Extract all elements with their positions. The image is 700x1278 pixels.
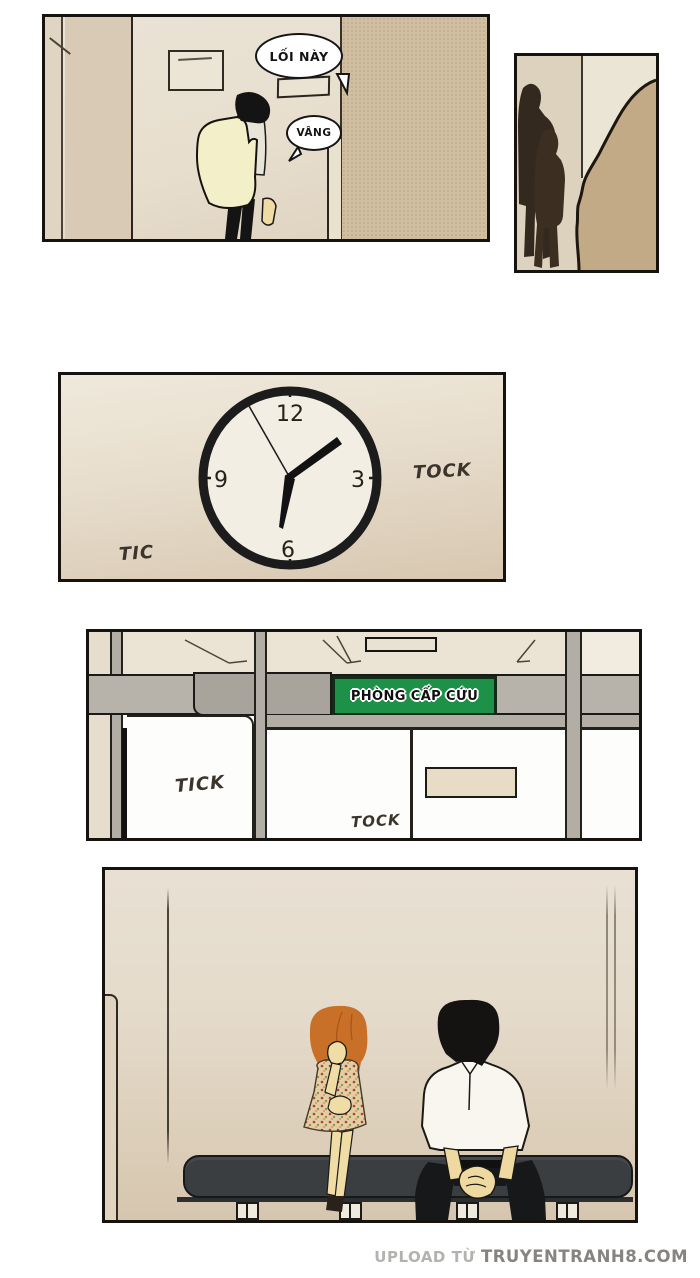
- wall-sign-under-bubble: [277, 76, 330, 99]
- clock-number-9: 9: [214, 468, 228, 493]
- speech-bubble-1-text: LỐI NÀY: [269, 49, 328, 64]
- bench-leg: [236, 1202, 259, 1220]
- site-watermark: UPLOAD TỪ TRUYENTRANH8.COM: [374, 1247, 688, 1266]
- open-door-sliver: [327, 137, 341, 239]
- sfx-tic: TIC: [118, 542, 155, 565]
- bench-seat: [183, 1155, 633, 1198]
- bench-leg: [556, 1202, 579, 1220]
- panel-hallway: LỐI NÀY VÂNG: [42, 14, 490, 242]
- sfx-tock-2: TOCK: [351, 811, 401, 832]
- watermark-prefix: UPLOAD TỪ: [374, 1248, 475, 1266]
- girl-hand-on-face: [328, 1042, 347, 1066]
- panel-clock: 12 3 6 9 TIC TOCK: [58, 372, 506, 582]
- picture-frame: [168, 50, 224, 91]
- girl-hand-on-lap: [328, 1096, 351, 1114]
- emergency-room-sign: PHÒNG CẤP CỨU: [332, 676, 497, 716]
- door-plaque: [425, 767, 517, 798]
- clock-number-12: 12: [276, 402, 304, 427]
- clock-number-3: 3: [351, 468, 365, 493]
- girl-shoe: [326, 1196, 344, 1212]
- under-beam-strip: [267, 715, 639, 729]
- pillar-mid: [254, 632, 267, 838]
- wall-faint-line-2: [614, 885, 616, 1090]
- wall-faint-line-1: [606, 885, 608, 1090]
- man-shirt: [422, 1061, 529, 1150]
- pillar-right: [565, 632, 582, 838]
- person-hand: [262, 198, 276, 225]
- left-wall-fixture: [105, 994, 118, 1220]
- sfx-tick: TICK: [174, 772, 226, 797]
- door-left: [65, 17, 133, 239]
- man-hair: [438, 1000, 500, 1066]
- walking-person: [185, 87, 295, 239]
- silhouette-short: [534, 129, 565, 268]
- speech-bubble-1: LỐI NÀY: [255, 33, 343, 79]
- ceiling-lines: [89, 632, 639, 674]
- speech-bubble-2-text: VÂNG: [297, 127, 332, 139]
- panel-watchers: [514, 53, 659, 273]
- girl-sitting: [280, 1000, 400, 1220]
- watchers-art: [517, 56, 656, 270]
- left-wall-strip: [89, 632, 110, 838]
- clock-center-pin: [288, 476, 293, 481]
- tan-wall: [342, 17, 487, 239]
- speech-bubble-2: VÂNG: [286, 115, 342, 151]
- watermark-site: TRUYENTRANH8.COM: [481, 1247, 688, 1266]
- panel-er-corridor: PHÒNG CẤP CỨU TICK TOCK: [86, 629, 642, 841]
- man-sitting: [410, 998, 550, 1220]
- wall-hairline: [167, 888, 169, 1164]
- person-coat: [197, 117, 257, 208]
- picture-frame-squiggle: [178, 57, 212, 61]
- emergency-room-sign-text: PHÒNG CẤP CỨU: [351, 689, 478, 704]
- man-hands-clasped: [459, 1166, 496, 1198]
- clock-number-6: 6: [281, 538, 295, 563]
- person-head: [235, 92, 270, 123]
- bubble-tail-1: [335, 72, 353, 96]
- sfx-tock: TOCK: [412, 459, 472, 483]
- door-4: [582, 728, 639, 838]
- door-frame-left: [45, 17, 63, 239]
- panel-bench: [102, 867, 638, 1223]
- ceiling-light: [365, 637, 437, 652]
